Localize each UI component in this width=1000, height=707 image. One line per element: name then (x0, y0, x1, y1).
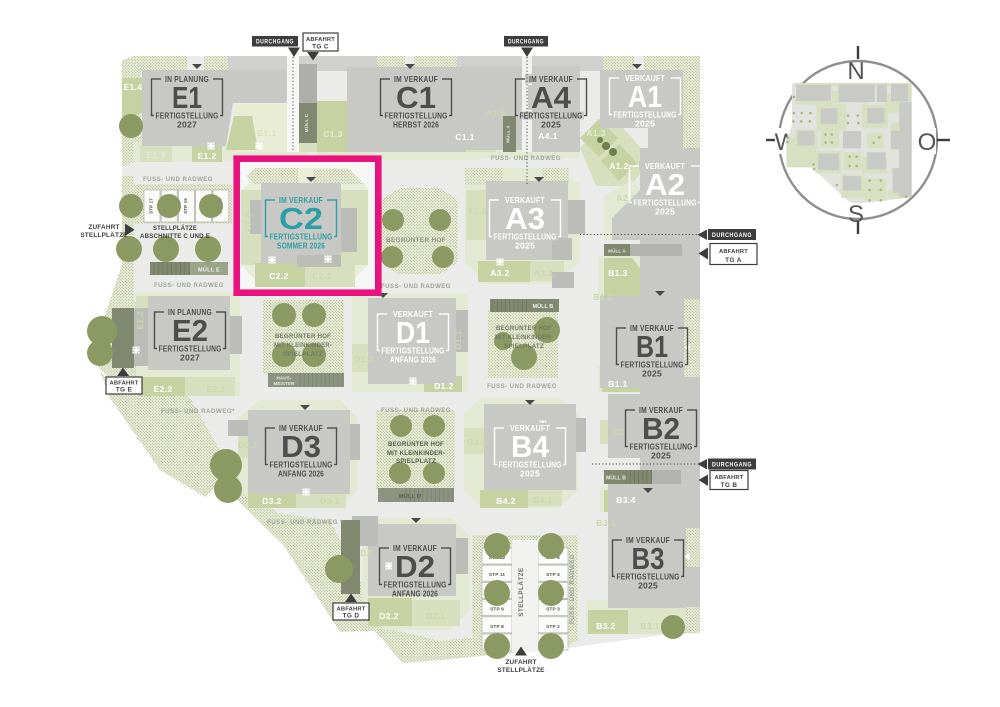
svg-text:B3.4: B3.4 (616, 495, 636, 505)
svg-text:B4: B4 (511, 429, 550, 464)
svg-text:SPIELPLATZ: SPIELPLATZ (504, 343, 544, 350)
svg-text:MÜLL B: MÜLL B (533, 303, 554, 310)
svg-text:TG E: TG E (116, 387, 133, 394)
svg-text:B2: B2 (613, 427, 625, 437)
svg-text:ABFAHRT: ABFAHRT (714, 475, 743, 481)
svg-text:TG D: TG D (343, 613, 360, 620)
svg-text:FUSS- UND RADWEG*: FUSS- UND RADWEG* (161, 408, 235, 415)
svg-text:2025: 2025 (642, 369, 662, 379)
svg-text:2027: 2027 (180, 353, 200, 363)
svg-text:BEGRÜNTER HOF: BEGRÜNTER HOF (275, 333, 331, 340)
svg-text:DURCHGANG: DURCHGANG (712, 232, 752, 239)
svg-text:B4.2: B4.2 (496, 496, 516, 506)
svg-text:B1.2: B1.2 (593, 292, 613, 302)
svg-text:E1.3: E1.3 (146, 150, 165, 160)
svg-text:A3: A3 (505, 201, 545, 236)
svg-text:FUSS- UND RADWEG: FUSS- UND RADWEG (487, 383, 557, 390)
svg-text:2025: 2025 (655, 207, 675, 217)
svg-text:E1.1: E1.1 (257, 128, 276, 138)
svg-text:DURCHGANG: DURCHGANG (256, 39, 294, 46)
svg-text:2025: 2025 (638, 581, 658, 591)
svg-text:ZUFAHRT: ZUFAHRT (505, 659, 536, 666)
svg-text:D2: D2 (360, 548, 372, 558)
svg-text:MIT KLEINKINDER-: MIT KLEINKINDER- (274, 342, 332, 349)
svg-text:E1.2: E1.2 (197, 151, 216, 161)
svg-text:D1: D1 (396, 315, 430, 350)
svg-text:2025: 2025 (541, 120, 561, 130)
svg-text:FUSS- UND RADWEG *: FUSS- UND RADWEG * (267, 519, 343, 526)
svg-text:N: N (847, 58, 864, 85)
svg-text:C2.1: C2.1 (312, 271, 332, 281)
svg-text:C2.2: C2.2 (269, 271, 289, 281)
svg-text:A3.3: A3.3 (467, 206, 487, 216)
svg-text:2025: 2025 (520, 469, 540, 479)
svg-text:D2.2: D2.2 (379, 611, 399, 621)
svg-text:E2.3: E2.3 (135, 310, 145, 329)
svg-text:MÜLL E: MÜLL E (198, 267, 220, 274)
svg-text:STP 8: STP 8 (490, 624, 504, 630)
svg-text:C1: C1 (396, 80, 436, 115)
svg-text:MÜLL A: MÜLL A (506, 125, 511, 143)
svg-text:STP 17: STP 17 (149, 198, 154, 214)
svg-text:D1.1: D1.1 (453, 330, 463, 350)
svg-text:FUSS- UND RADWEG: FUSS- UND RADWEG (491, 155, 561, 162)
svg-text:ZUFAHRT: ZUFAHRT (88, 224, 119, 231)
svg-text:B1.1: B1.1 (608, 379, 628, 389)
svg-text:ANFANG 2026: ANFANG 2026 (278, 469, 324, 479)
svg-text:ABFAHRT: ABFAHRT (336, 606, 365, 612)
svg-text:A3.1: A3.1 (534, 268, 554, 278)
svg-text:2025: 2025 (515, 241, 535, 251)
svg-text:A2: A2 (645, 167, 685, 202)
svg-text:TG C: TG C (312, 44, 329, 51)
svg-text:D3.2: D3.2 (262, 496, 282, 506)
svg-text:SOMMER 2026: SOMMER 2026 (277, 241, 325, 251)
svg-text:B3.3: B3.3 (596, 518, 616, 528)
svg-text:STP 11: STP 11 (489, 572, 505, 578)
svg-text:MIT KLEINKINDER-: MIT KLEINKINDER- (387, 450, 445, 457)
svg-text:D1.2: D1.2 (434, 381, 454, 391)
svg-text:A1.3: A1.3 (586, 128, 606, 138)
svg-text:A1.6: A1.6 (486, 108, 506, 118)
svg-text:FUSS- UND RADWEG: FUSS- UND RADWEG (381, 283, 451, 290)
svg-text:ABFAHRT: ABFAHRT (719, 249, 748, 255)
svg-text:D3: D3 (281, 429, 321, 464)
svg-text:STP 3: STP 3 (546, 607, 560, 613)
svg-text:HERBST 2026: HERBST 2026 (393, 120, 439, 130)
svg-text:A4: A4 (531, 80, 572, 115)
svg-text:B3: B3 (632, 541, 665, 576)
svg-text:DURCHGANG: DURCHGANG (712, 462, 752, 469)
svg-text:2027: 2027 (177, 120, 197, 130)
svg-text:E2: E2 (172, 313, 208, 348)
svg-text:TG A: TG A (725, 257, 742, 264)
svg-text:ABSCHNITTE C UND E: ABSCHNITTE C UND E (140, 233, 211, 240)
svg-text:MIT KLEINKINDER-: MIT KLEINKINDER- (495, 334, 553, 341)
svg-text:BEGRÜNTER HOF: BEGRÜNTER HOF (386, 235, 446, 244)
svg-text:E1: E1 (172, 80, 202, 115)
svg-text:A1.2: A1.2 (609, 161, 629, 171)
svg-text:ABFAHRT: ABFAHRT (109, 380, 138, 386)
svg-text:SPIELPLATZ: SPIELPLATZ (396, 458, 436, 465)
svg-text:STELLPLÄTZE: STELLPLÄTZE (518, 567, 525, 616)
svg-text:C2.3: C2.3 (243, 212, 253, 232)
svg-text:2025: 2025 (651, 451, 671, 461)
svg-text:S: S (848, 201, 864, 228)
svg-text:2025: 2025 (635, 119, 655, 129)
svg-text:STELLPLÄTZE: STELLPLÄTZE (153, 224, 197, 232)
svg-text:FUSS- UND RADWEG: FUSS- UND RADWEG (143, 176, 213, 183)
svg-text:B4.3: B4.3 (467, 437, 487, 447)
svg-text:MEISTER: MEISTER (273, 381, 295, 386)
svg-text:HAUS-: HAUS- (276, 376, 291, 381)
svg-text:B1: B1 (636, 329, 668, 364)
svg-text:STELLPLÄTZE: STELLPLÄTZE (80, 231, 128, 239)
svg-text:BEGRÜNTER HOF: BEGRÜNTER HOF (496, 325, 552, 332)
svg-text:ANFANG 2026: ANFANG 2026 (392, 589, 438, 599)
svg-text:FUSS- UND RADWEG: FUSS- UND RADWEG (569, 554, 576, 624)
svg-text:C2: C2 (279, 201, 323, 236)
svg-text:E2.2: E2.2 (153, 384, 172, 394)
svg-text:STELLPLÄTZE: STELLPLÄTZE (497, 666, 545, 674)
svg-text:ABFAHRT: ABFAHRT (306, 37, 335, 43)
svg-text:D3.3: D3.3 (238, 440, 258, 450)
svg-text:FUSS- UND RADWEG: FUSS- UND RADWEG (154, 282, 224, 289)
svg-text:TG B: TG B (721, 482, 738, 489)
svg-text:B2: B2 (642, 411, 680, 446)
svg-text:STP 5: STP 5 (546, 572, 560, 578)
svg-text:A3.2: A3.2 (490, 268, 510, 278)
svg-text:MÜLL B: MÜLL B (606, 475, 626, 482)
svg-text:A1: A1 (628, 79, 662, 114)
svg-text:B1.3: B1.3 (608, 268, 628, 278)
svg-text:O: O (918, 129, 937, 156)
svg-text:MÜLL A: MÜLL A (608, 248, 626, 254)
svg-text:C1.1: C1.1 (455, 132, 475, 142)
svg-text:STP 15: STP 15 (183, 198, 188, 214)
svg-text:B4.1: B4.1 (533, 495, 553, 505)
svg-text:STP 2: STP 2 (546, 624, 560, 630)
svg-text:B3.2: B3.2 (596, 621, 616, 631)
svg-text:BEGRÜNTER HOF: BEGRÜNTER HOF (388, 441, 444, 448)
svg-text:E2.1: E2.1 (206, 384, 225, 394)
svg-text:ANFANG 2026: ANFANG 2026 (390, 355, 436, 365)
svg-text:D1.3: D1.3 (354, 354, 374, 364)
svg-text:MÜLL D: MÜLL D (399, 493, 421, 500)
svg-text:A4.1: A4.1 (538, 131, 558, 141)
svg-text:B3.1: B3.1 (640, 621, 660, 631)
svg-text:MÜLL C: MÜLL C (303, 113, 309, 132)
svg-text:E1.4: E1.4 (123, 82, 142, 92)
svg-text:SPIELPLATZ: SPIELPLATZ (283, 351, 323, 358)
svg-text:D2: D2 (395, 549, 435, 584)
svg-text:C1.3: C1.3 (323, 129, 343, 139)
svg-text:D2.1: D2.1 (426, 611, 446, 621)
svg-text:STP 9: STP 9 (490, 607, 504, 613)
svg-text:D3.1: D3.1 (320, 496, 340, 506)
svg-text:DURCHGANG: DURCHGANG (508, 39, 544, 46)
svg-text:FUSS- UND RADWEG: FUSS- UND RADWEG (381, 407, 451, 414)
